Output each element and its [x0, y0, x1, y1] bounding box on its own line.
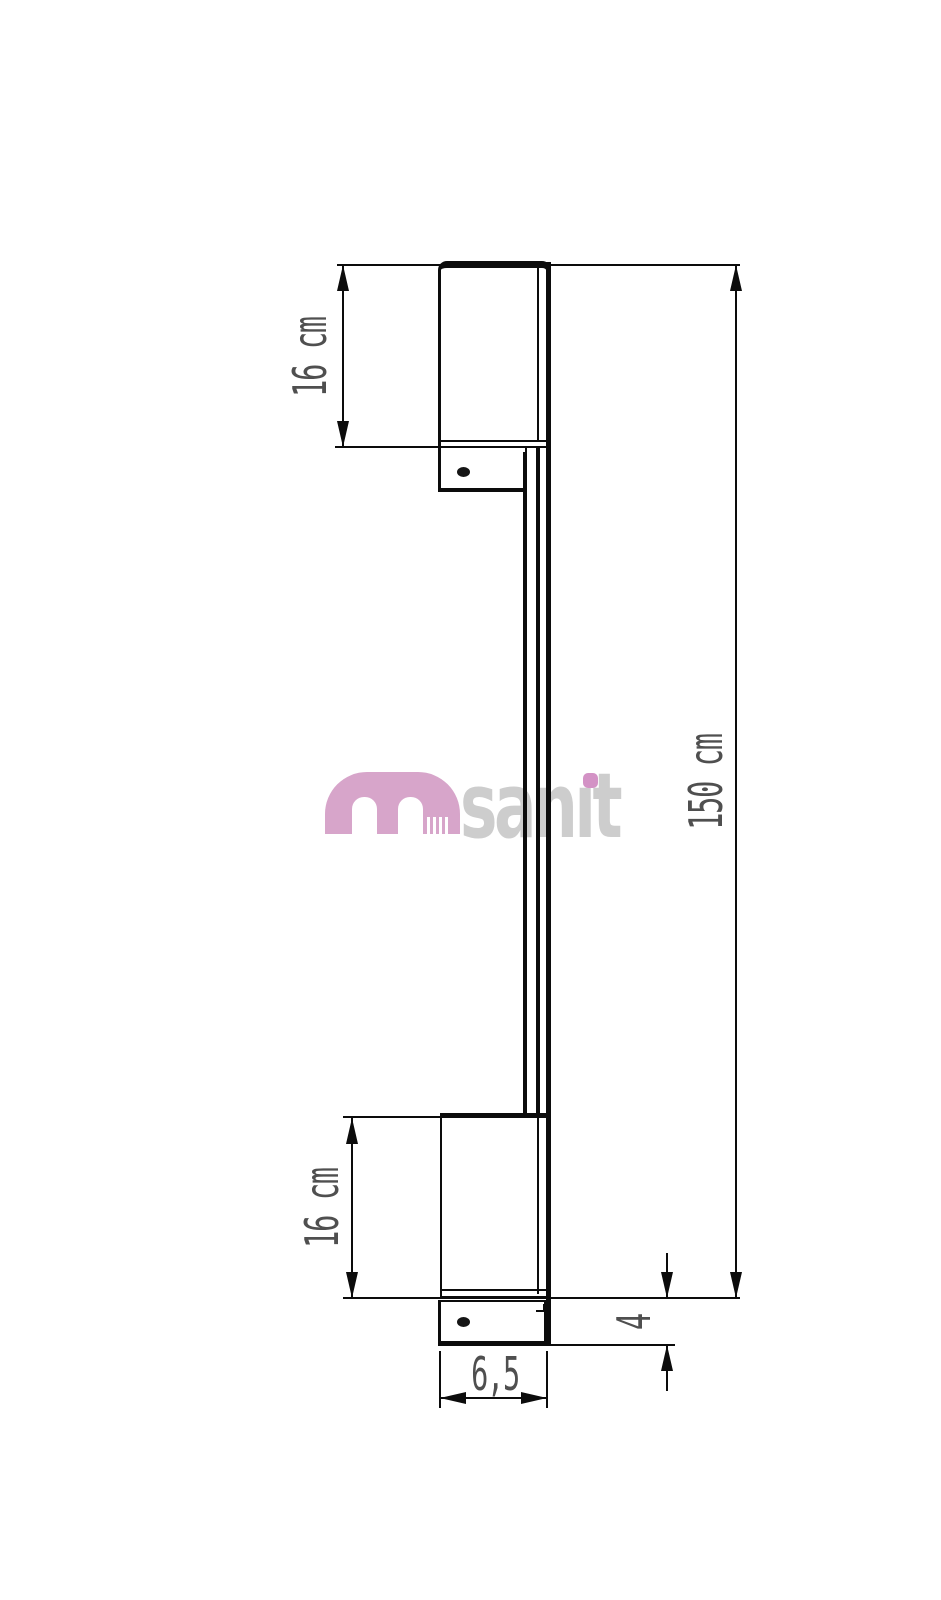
dim-label-plate-height: 4 — [611, 1291, 657, 1353]
top-bracket-bottom-line-1 — [438, 440, 548, 442]
watermark-logo-comb-stripe — [433, 817, 436, 834]
plate-detail-tick — [536, 1310, 545, 1312]
arrow-up-icon — [337, 265, 349, 291]
arrow-down-icon — [730, 1272, 742, 1298]
dim-label-bottom-section: 16 cm — [299, 1146, 345, 1270]
watermark-text-pre: san — [460, 754, 574, 859]
watermark-logo-comb-stripe — [445, 817, 448, 834]
top-bracket-inner-line — [537, 263, 539, 441]
dim-line-total-height — [735, 265, 737, 1298]
extension-line-top-bracket-bottom — [335, 446, 438, 448]
watermark-text-post: t — [592, 754, 619, 859]
watermark-logo-arch-cutout — [352, 797, 377, 834]
arrow-down-icon — [337, 421, 349, 447]
bar-middle-line — [536, 448, 540, 1115]
watermark-logo-comb-stripe — [427, 817, 430, 834]
watermark-text-i: ı — [574, 754, 592, 859]
watermark-logo-comb-stripe — [439, 817, 442, 834]
bottom-bracket-outline — [440, 1113, 551, 1297]
bottom-mounting-plate — [438, 1300, 548, 1346]
bottom-bracket-inner-line — [537, 1118, 539, 1294]
top-mounting-plate — [438, 448, 527, 492]
watermark-logo-arch-cutout — [398, 797, 423, 834]
dim-label-top-section: 16 cm — [287, 295, 333, 419]
dim-label-bracket-width: 6,5 — [445, 1351, 544, 1397]
screw-hole-icon — [457, 1317, 470, 1327]
dim-label-total-height: 150 cm — [683, 720, 729, 844]
bottom-bracket-bottom-line-2 — [440, 1296, 548, 1298]
arrow-up-icon — [661, 1345, 673, 1371]
arrow-down-icon — [661, 1272, 673, 1298]
arrow-up-icon — [346, 1118, 358, 1144]
dim-line-bottom-section — [351, 1118, 353, 1298]
bottom-bracket-bottom-line-1 — [440, 1289, 548, 1291]
top-bracket-outline — [438, 261, 551, 447]
screw-hole-icon — [457, 467, 470, 477]
arrow-down-icon — [346, 1272, 358, 1298]
watermark-logo-m — [325, 772, 460, 834]
watermark-i-dot — [583, 773, 598, 788]
bar-left-edge — [523, 452, 527, 1115]
technical-drawing-canvas: sanıt 16 cm 16 cm 150 cm 4 6,5 — [0, 0, 941, 1600]
dim-line-top-section — [342, 265, 344, 447]
arrow-up-icon — [730, 265, 742, 291]
